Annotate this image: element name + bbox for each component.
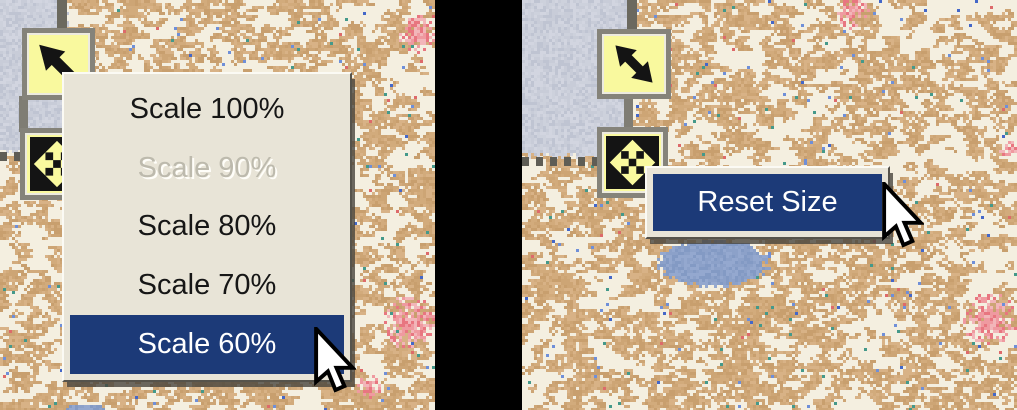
scale-context-menu: Scale 100% Scale 90% Scale 80% Scale 70%… bbox=[62, 72, 352, 382]
resize-nw-se-double-arrow-icon bbox=[606, 38, 662, 90]
selection-border-top-notch bbox=[57, 0, 67, 29]
mouse-cursor-icon bbox=[312, 327, 356, 395]
menu-item-scale-100[interactable]: Scale 100% bbox=[70, 80, 344, 139]
handle-connector-strip bbox=[19, 96, 28, 132]
menu-item-reset-size[interactable]: Reset Size bbox=[653, 174, 882, 231]
selection-border-top-notch bbox=[627, 0, 637, 30]
screenshot-divider bbox=[435, 0, 522, 410]
menu-item-scale-60[interactable]: Scale 60% bbox=[70, 315, 344, 374]
selection-border-dashes bbox=[522, 157, 600, 166]
reset-size-context-menu: Reset Size bbox=[645, 166, 890, 239]
right-screenshot-panel: Reset Size bbox=[522, 0, 1017, 410]
mouse-cursor-icon bbox=[880, 182, 924, 250]
handle-connector-strip bbox=[624, 96, 633, 129]
menu-item-scale-80[interactable]: Scale 80% bbox=[70, 198, 344, 257]
resize-handle-button[interactable] bbox=[597, 29, 671, 99]
menu-item-scale-90[interactable]: Scale 90% bbox=[70, 139, 344, 198]
menu-item-scale-70[interactable]: Scale 70% bbox=[70, 256, 344, 315]
left-screenshot-panel: Scale 100% Scale 90% Scale 80% Scale 70%… bbox=[0, 0, 435, 410]
